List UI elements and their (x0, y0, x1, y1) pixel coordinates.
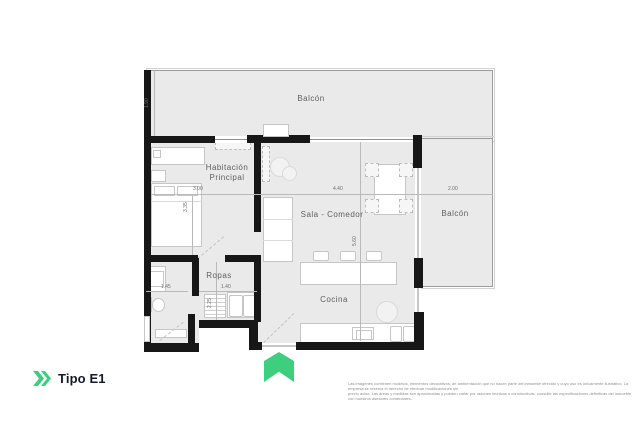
wall-nook-right (249, 322, 258, 350)
entry-nook (199, 328, 249, 348)
dim-bedroom-depth: 3.35 (183, 198, 189, 212)
window-kitchen-right (415, 288, 421, 312)
entrance-arrow-icon (264, 352, 294, 382)
wall-bottom-right (296, 342, 416, 350)
wall-bedroom-bottom-left (148, 255, 198, 262)
bar-stool (340, 251, 356, 261)
label-balcony-right: Balcón (425, 209, 485, 218)
dim-laundry-width: 1.40 (221, 284, 231, 290)
dim-bathroom-width: 1.45 (161, 284, 171, 290)
dim-balcony-top-depth: 1.90 (144, 94, 150, 108)
floor-plan-page: 1.90 3.00 3.35 4.40 5.60 2.00 1.45 1.40 … (0, 0, 640, 427)
label-bedroom: Habitación Principal (187, 163, 267, 183)
wall-bedroom-balcony (151, 136, 215, 143)
kitchen-sink-basin (356, 330, 372, 340)
desk-chair (153, 150, 161, 158)
label-laundry: Ropas (194, 271, 244, 280)
dim-line-bathroom-width (146, 291, 188, 292)
bar-stool (366, 251, 382, 261)
dining-chair (365, 163, 379, 177)
unit-logo: Tipo E1 (33, 371, 106, 386)
dim-balcony-right-width: 2.00 (448, 186, 458, 192)
window-living-top (310, 137, 414, 142)
toilet-bowl (152, 298, 165, 312)
dim-line-horizontal (151, 194, 493, 195)
dim-line-bedroom-depth (192, 196, 193, 255)
dim-laundry-depth: 2.25 (207, 294, 213, 308)
label-kitchen: Cocina (304, 295, 364, 304)
label-bedroom-line2: Principal (210, 173, 245, 182)
disclaimer-text: Las imágenes contienen modelos, elemento… (348, 381, 633, 401)
wall-post-ne (413, 135, 422, 168)
sofa-cushion-line (263, 219, 293, 220)
label-balcony-top: Balcón (281, 94, 341, 103)
balcony-door-leaf (263, 124, 289, 137)
wall-left (144, 70, 151, 352)
entrance-door-opening (262, 343, 296, 349)
wall-right-mid (414, 258, 423, 288)
dim-line-living-depth (360, 142, 361, 341)
wall-bedroom-living (254, 135, 261, 232)
wall-laundry-right (254, 255, 261, 322)
kitchen-plant (376, 301, 398, 323)
stove-burner (390, 326, 402, 342)
label-living: Sala - Comedor (292, 210, 372, 219)
logo-chevron-icon (33, 371, 52, 386)
sofa (263, 197, 293, 262)
dim-living-width: 4.40 (333, 186, 343, 192)
disclaimer-line1: Las imágenes contienen modelos, elemento… (348, 381, 633, 391)
dining-chair (399, 163, 413, 177)
window-living-right (415, 168, 421, 258)
washer-drum (229, 295, 243, 317)
bed-blanket-line (151, 201, 202, 202)
window-bedroom (215, 136, 247, 143)
dim-line-balcony-depth (154, 70, 155, 136)
kitchen-island (300, 262, 397, 285)
dim-bedroom-width: 3.00 (193, 186, 203, 192)
nightstand (151, 170, 166, 182)
disclaimer-line2: previo aviso. Las áreas y medidas son ap… (348, 391, 633, 401)
shower-door-leaf (144, 316, 150, 342)
sofa-cushion-line (263, 240, 293, 241)
balcony-top-floor (148, 70, 493, 140)
dining-chair (399, 199, 413, 213)
dim-line-laundry-width (199, 291, 257, 292)
unit-name: Tipo E1 (58, 371, 106, 386)
dim-living-depth: 5.60 (352, 232, 358, 246)
bedroom-closet (215, 142, 251, 150)
label-bedroom-line1: Habitación (206, 163, 249, 172)
wall-bathroom-bottom (144, 343, 199, 352)
plant (282, 166, 297, 181)
bar-stool (313, 251, 329, 261)
